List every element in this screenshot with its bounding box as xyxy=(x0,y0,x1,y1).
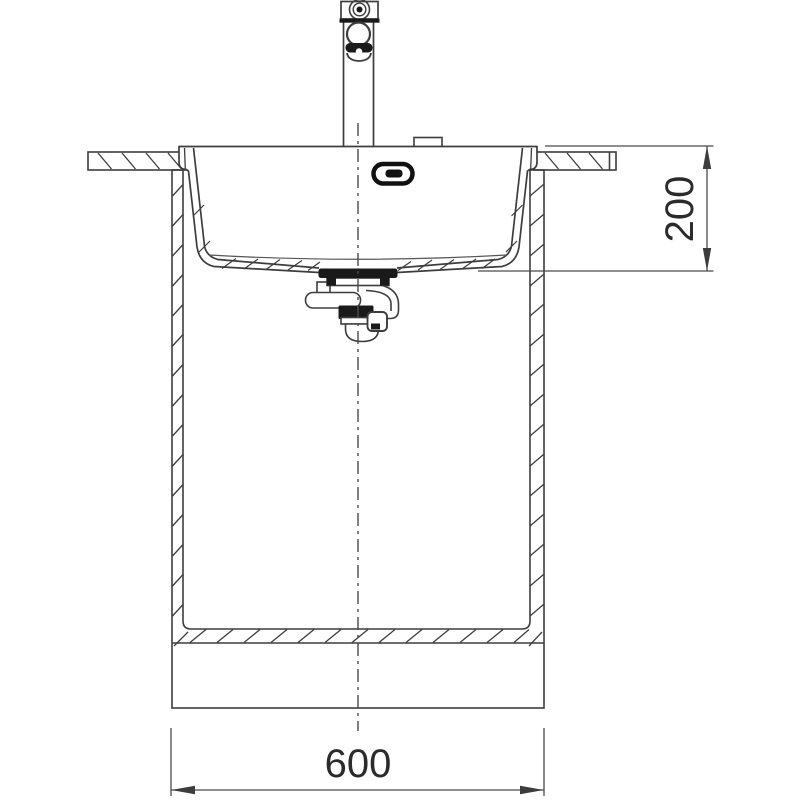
tap-aerator-dot xyxy=(357,7,363,13)
cabinet-right-panel-hatch xyxy=(530,185,544,617)
overflow-slot xyxy=(374,164,413,184)
tap-hole-cover xyxy=(414,138,442,148)
mixer-tap xyxy=(340,0,380,147)
tap-lever-notch xyxy=(356,48,362,54)
arrow-right xyxy=(520,786,544,794)
technical-drawing-canvas: 600 200 xyxy=(0,0,800,800)
cabinet-left-panel-hatch xyxy=(173,185,184,617)
overflow-inner xyxy=(386,170,403,178)
arrow-up xyxy=(703,146,711,169)
arrow-down xyxy=(703,248,711,271)
sink-rim-hook-right xyxy=(531,148,532,169)
trap-side-fitting-dark xyxy=(371,324,380,330)
strainer-collar-left-dark xyxy=(327,278,336,286)
dimension-label-600: 600 xyxy=(298,741,418,787)
sink-rim-hook-left xyxy=(185,148,186,169)
drain-trap-assembly xyxy=(306,269,399,342)
arrow-left xyxy=(171,786,195,794)
sink-section-drawing xyxy=(0,0,800,800)
strainer-collar-right-dark xyxy=(380,278,389,286)
dimension-label-200: 200 xyxy=(657,149,697,269)
tap-lever-knob xyxy=(347,23,370,46)
